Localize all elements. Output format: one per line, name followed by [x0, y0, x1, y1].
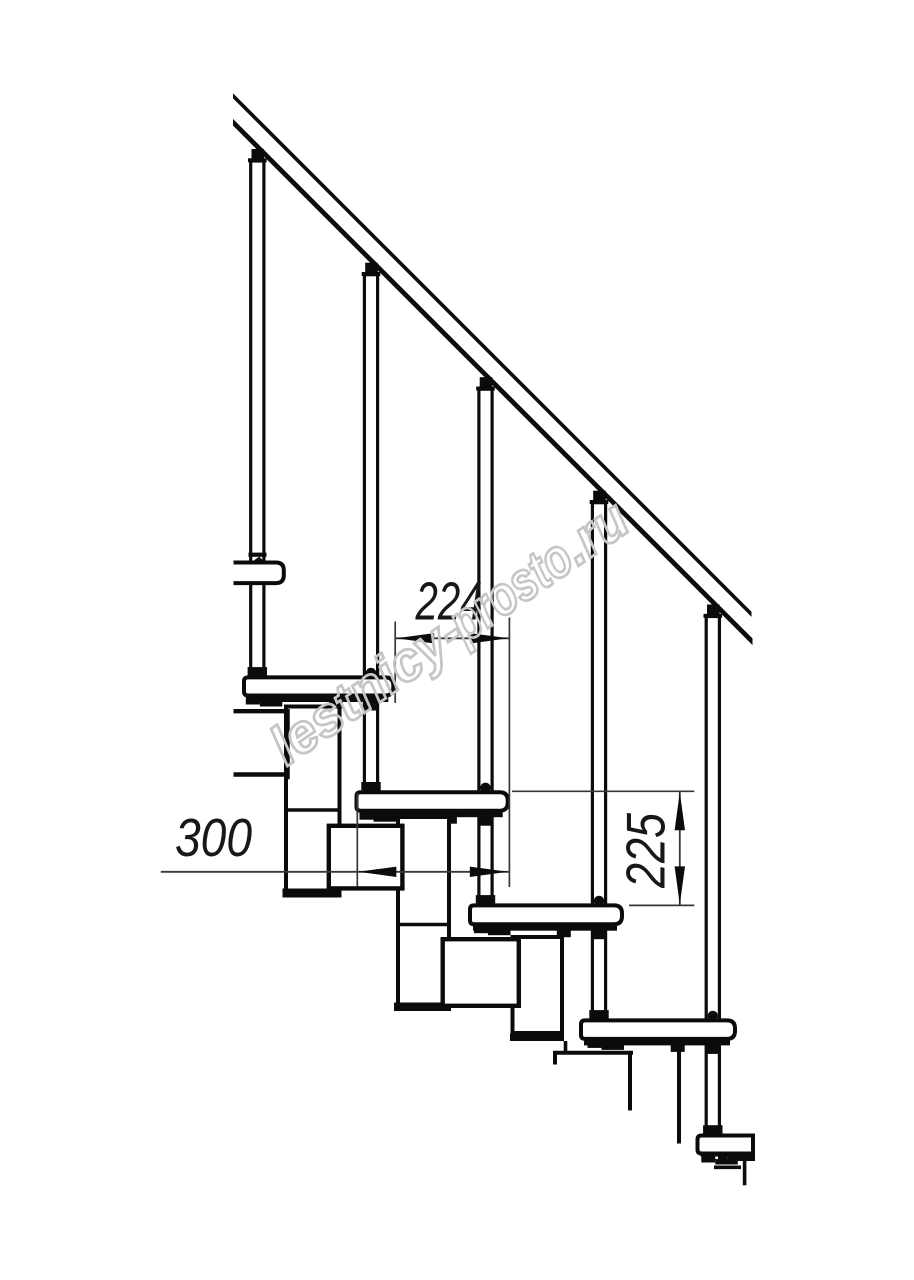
svg-text:225: 225: [615, 813, 677, 889]
svg-text:300: 300: [175, 808, 252, 868]
